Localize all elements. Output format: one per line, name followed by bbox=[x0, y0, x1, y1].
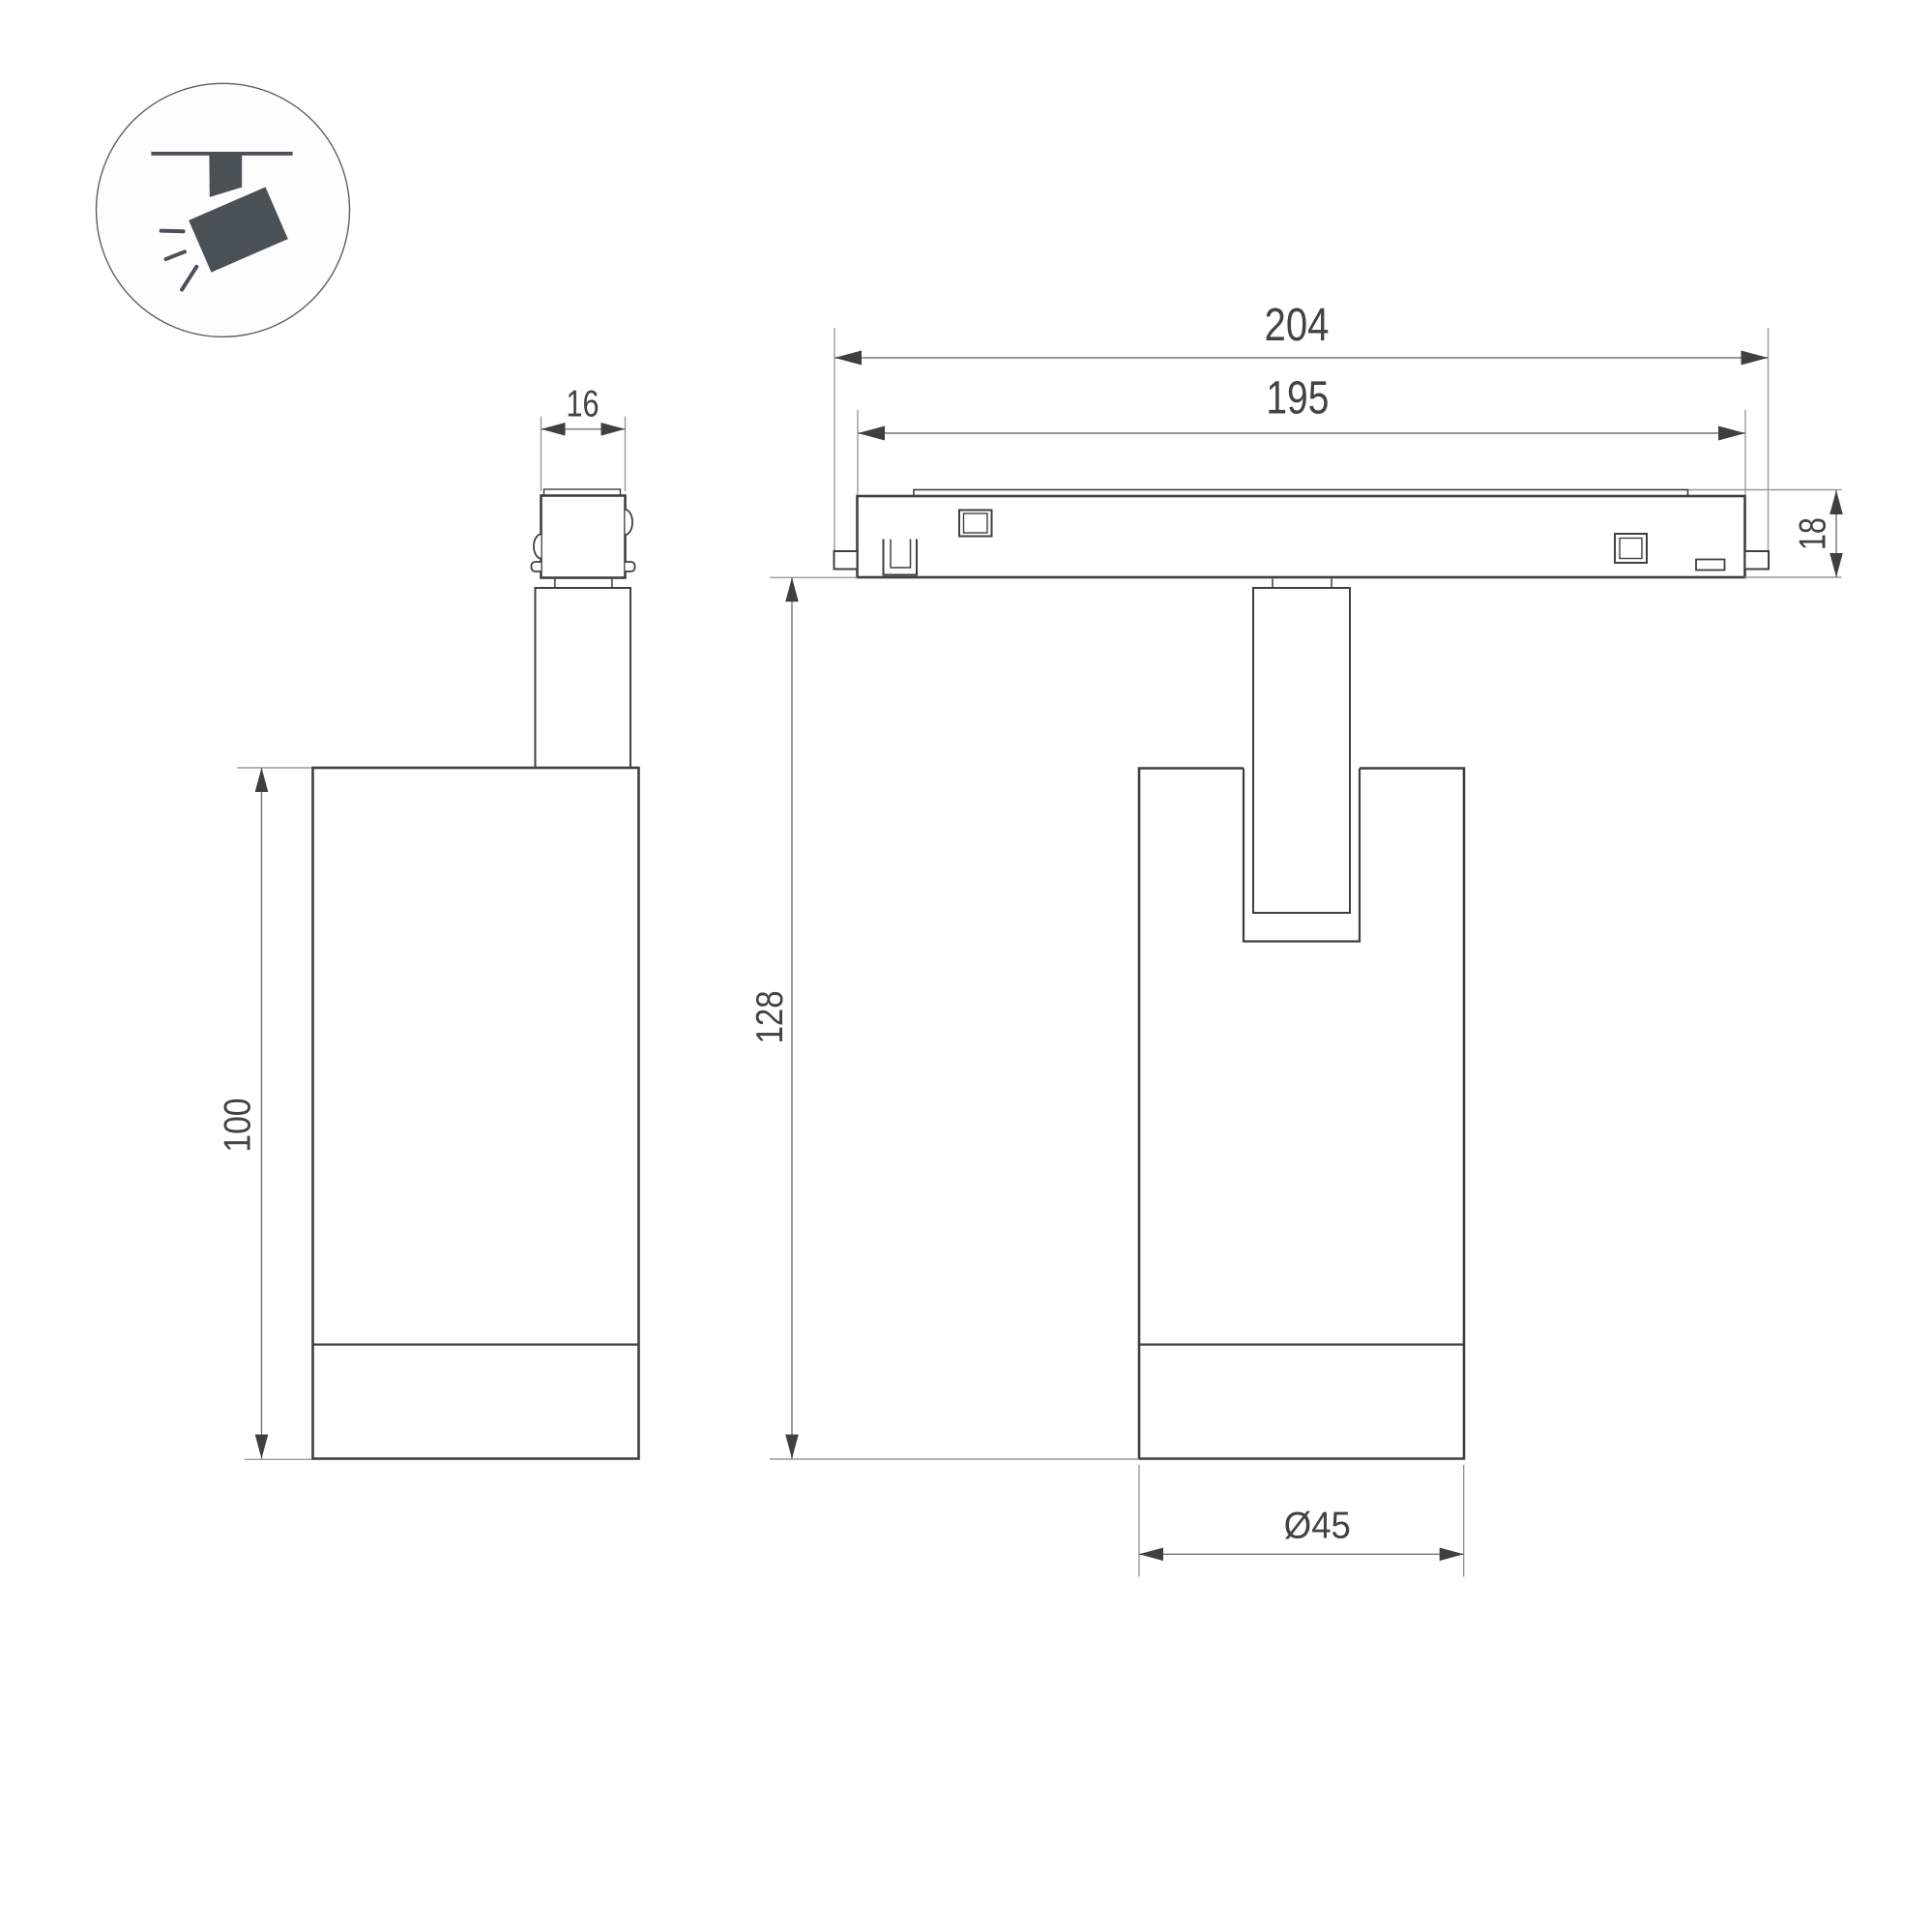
svg-text:Ø45: Ø45 bbox=[1284, 1506, 1351, 1547]
svg-text:18: 18 bbox=[1792, 517, 1833, 550]
svg-text:195: 195 bbox=[1266, 373, 1329, 424]
svg-text:100: 100 bbox=[218, 1098, 259, 1153]
svg-text:128: 128 bbox=[749, 990, 791, 1043]
svg-text:204: 204 bbox=[1265, 300, 1330, 351]
svg-text:16: 16 bbox=[567, 384, 600, 425]
